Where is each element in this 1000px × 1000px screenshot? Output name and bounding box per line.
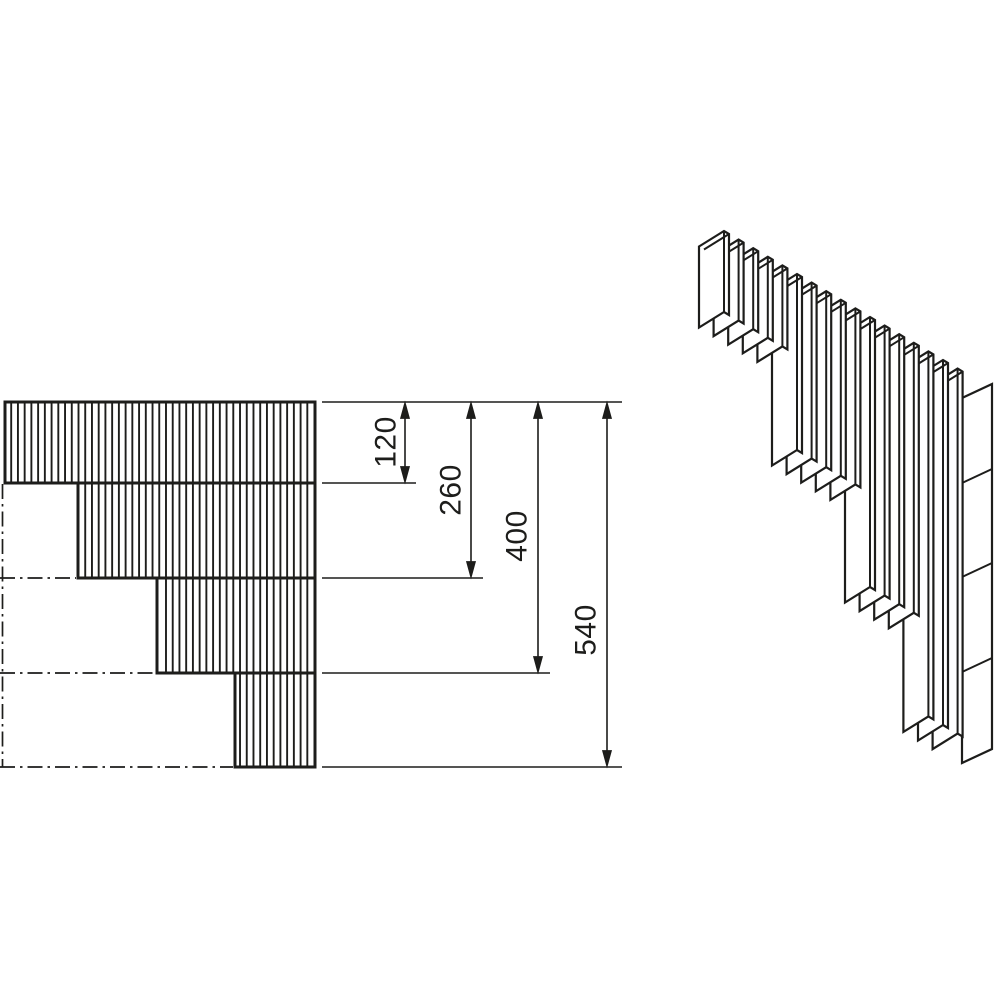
- dimension-label-260: 260: [435, 464, 468, 516]
- dimension-label-400: 400: [501, 510, 534, 562]
- technical-drawing-svg: 120 260 400 540: [0, 0, 1000, 1000]
- slat: [699, 231, 729, 328]
- corner-post-face: [962, 384, 992, 763]
- technical-drawing-page: 120 260 400 540: [0, 0, 1000, 1000]
- dimension-label-540: 540: [570, 604, 603, 656]
- dimension-label-120: 120: [370, 416, 403, 468]
